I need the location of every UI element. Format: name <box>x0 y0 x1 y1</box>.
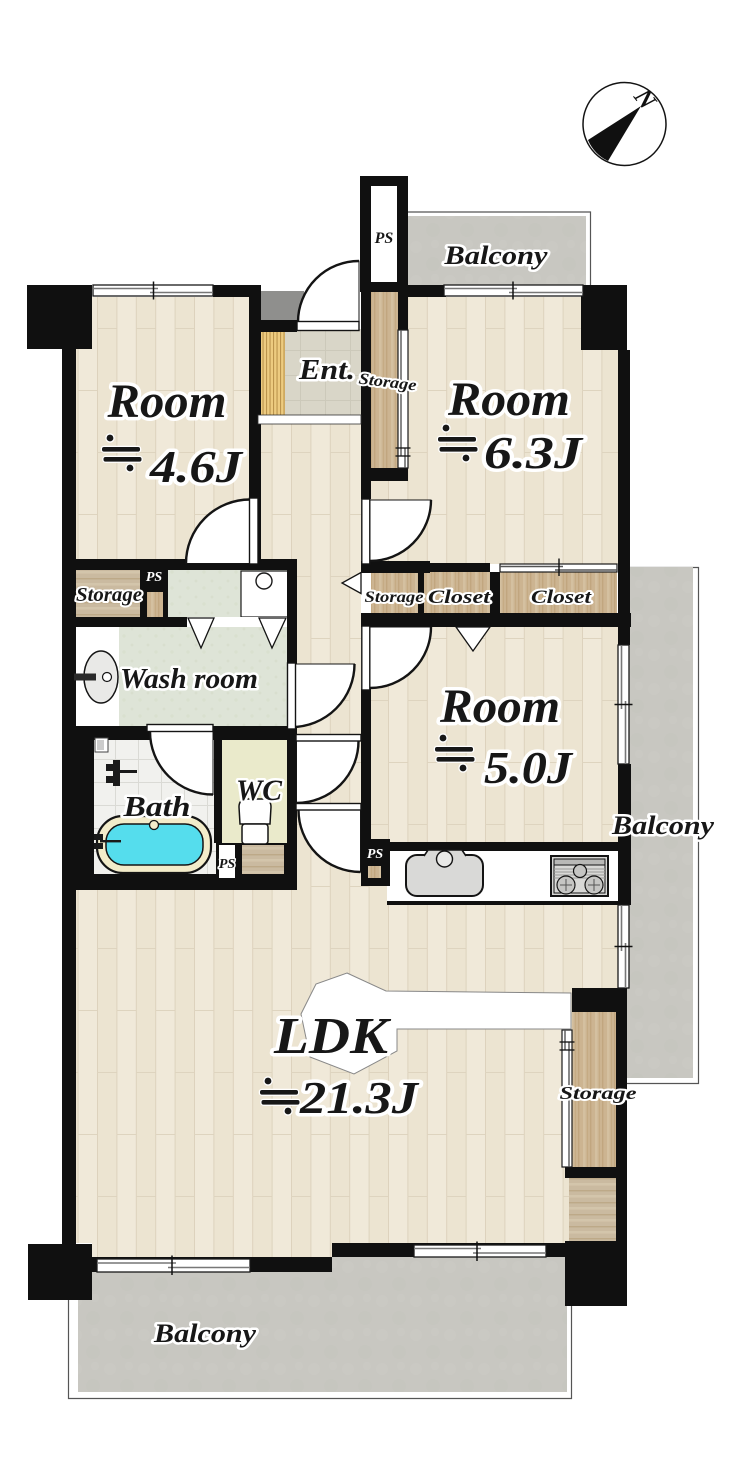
svg-text:Storage: Storage <box>76 584 142 606</box>
svg-text:WC: WC <box>236 774 283 807</box>
svg-text:21.3J: 21.3J <box>299 1072 420 1123</box>
svg-text:5.0J: 5.0J <box>484 742 574 793</box>
svg-text:Balcony: Balcony <box>611 811 715 840</box>
svg-text:PS: PS <box>374 230 394 247</box>
svg-text:PS: PS <box>367 847 384 862</box>
svg-text:Balcony: Balcony <box>443 241 548 270</box>
svg-text:Room: Room <box>106 375 226 428</box>
svg-text:Closet: Closet <box>531 587 592 608</box>
svg-text:Closet: Closet <box>428 587 491 608</box>
svg-text:Room: Room <box>447 373 570 426</box>
svg-text:Storage: Storage <box>560 1083 637 1103</box>
svg-text:PS: PS <box>219 857 236 872</box>
svg-text:LDK: LDK <box>273 1008 392 1065</box>
svg-text:Storage: Storage <box>365 589 424 606</box>
svg-text:Ent.: Ent. <box>298 355 355 386</box>
svg-text:Room: Room <box>439 680 560 733</box>
svg-text:PS: PS <box>146 570 163 585</box>
svg-text:Bath: Bath <box>122 792 190 823</box>
svg-text:Balcony: Balcony <box>153 1319 257 1348</box>
svg-text:4.6J: 4.6J <box>149 441 244 492</box>
svg-text:6.3J: 6.3J <box>484 427 584 478</box>
svg-text:Wash room: Wash room <box>120 664 258 695</box>
